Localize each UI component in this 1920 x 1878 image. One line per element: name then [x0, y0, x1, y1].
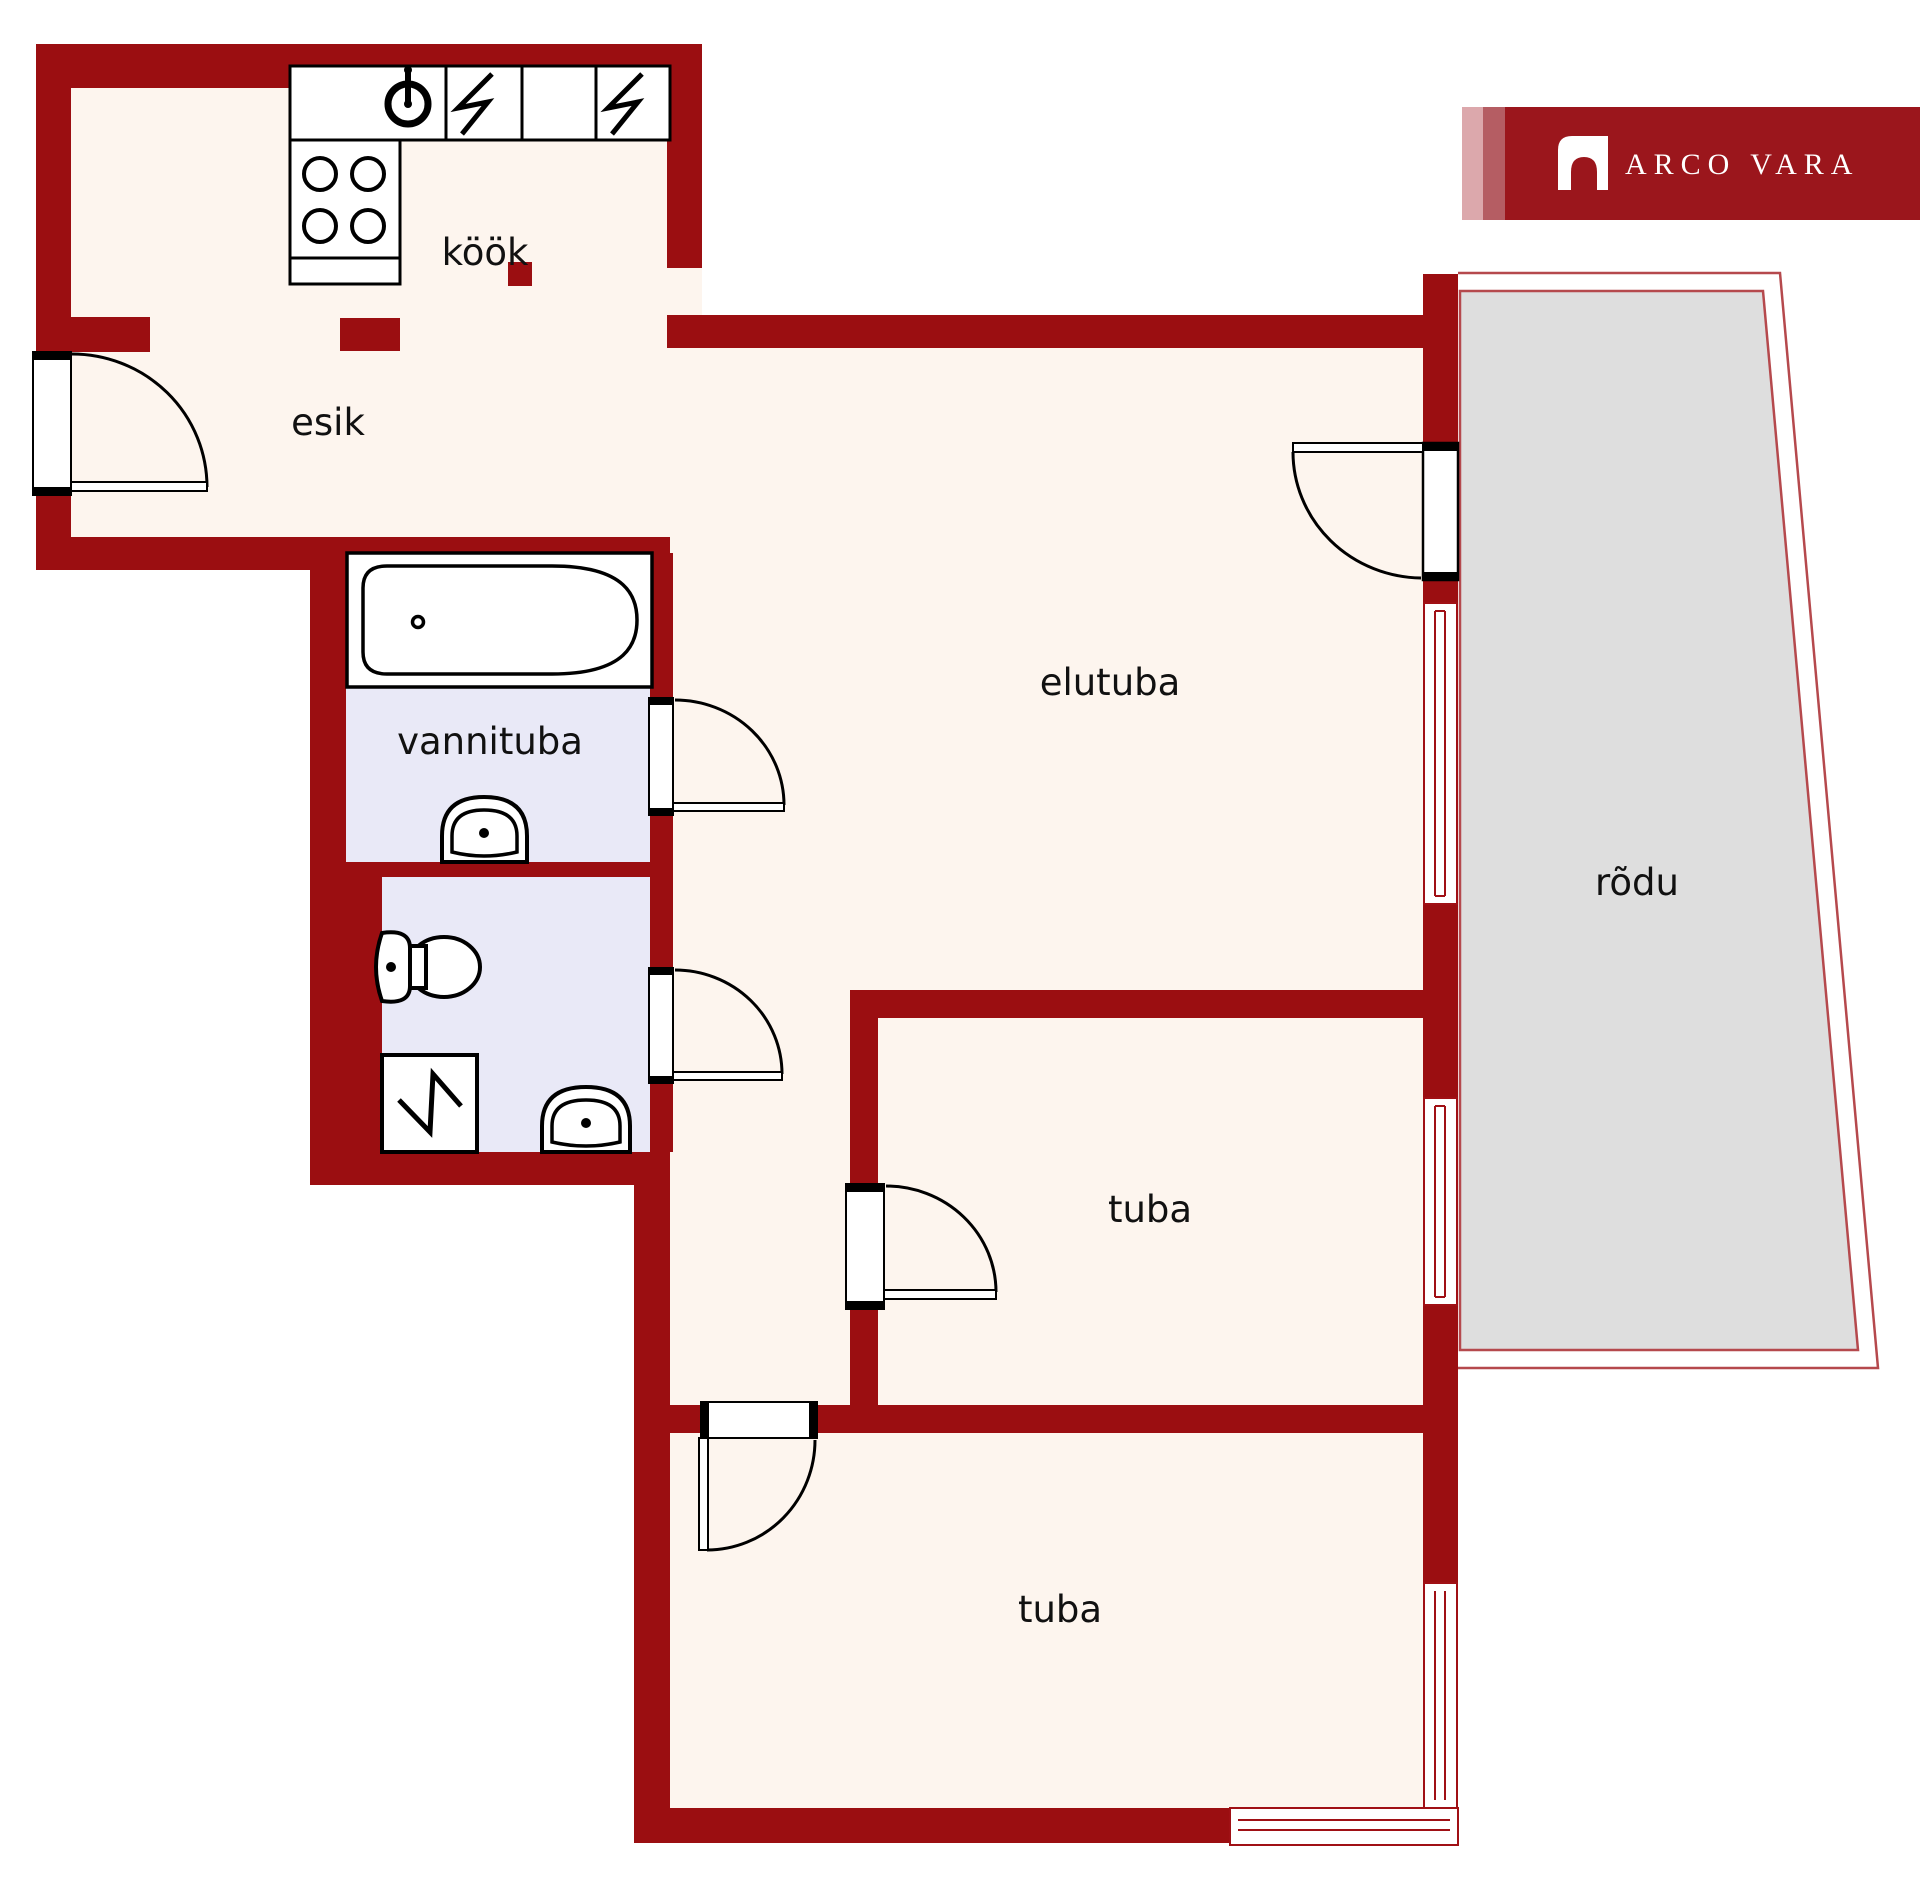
sink-icon [542, 1087, 630, 1152]
sink-icon [442, 797, 527, 862]
wall-bath-divider [346, 862, 652, 877]
door-leaf [71, 482, 207, 491]
arch-icon [1558, 136, 1608, 190]
room-label-tuba-bottom: tuba [1018, 1588, 1102, 1631]
window-1 [1424, 603, 1457, 904]
brand-banner: ARCO VARA [1462, 107, 1920, 220]
bathtub-icon [347, 553, 652, 687]
wall-bath-left-lower [310, 862, 382, 1152]
wall-bottom [634, 1808, 1230, 1843]
wall-divider-left [670, 1405, 701, 1433]
window-3 [1424, 1583, 1457, 1808]
wall-window-top [1423, 274, 1458, 348]
room-label-rodu: rõdu [1595, 861, 1679, 904]
door-leaf [1293, 443, 1423, 452]
stove [290, 140, 400, 284]
door-leaf [699, 1438, 708, 1550]
banner-stripe-medium [1483, 107, 1505, 220]
door-leaf [673, 803, 784, 811]
wall-window-d [1423, 1305, 1458, 1583]
wall-partition-lower [850, 1309, 878, 1405]
wall-kitchen-stub [340, 318, 400, 351]
floor-plan-page: köök esik vannituba elutuba tuba tuba rõ… [0, 0, 1920, 1878]
room-label-esik: esik [291, 401, 365, 444]
wall-left-upper [36, 44, 71, 352]
wall-kitchen-right [667, 44, 702, 268]
wall-left-stub [36, 317, 150, 352]
room-label-elutuba: elutuba [1040, 661, 1181, 704]
washing-machine-icon [382, 1055, 477, 1152]
room-label-kook: köök [442, 231, 529, 274]
wall-divider-right [817, 1405, 1423, 1433]
room-label-tuba-middle: tuba [1108, 1188, 1192, 1231]
window-2 [1424, 1098, 1457, 1305]
brand-logo-text: ARCO VARA [1625, 148, 1859, 181]
wall-tuba-top [850, 990, 1423, 1018]
wall-bath-left-upper [310, 553, 346, 862]
room-label-vannituba: vannituba [397, 720, 583, 763]
wall-elutuba-top [667, 315, 1458, 348]
door-leaf [884, 1290, 996, 1299]
wall-partition-upper [850, 990, 878, 1184]
wall-window-a [1423, 348, 1458, 443]
toilet-icon [376, 932, 480, 1001]
balcony-deck [1460, 291, 1858, 1350]
wall-bath-right-c [650, 1083, 673, 1152]
balcony [1458, 273, 1878, 1368]
window-4-bottom [1230, 1808, 1458, 1845]
wall-corridor-left [634, 1185, 670, 1843]
wall-wc-bottom [310, 1152, 670, 1185]
wall-bath-right-b [650, 815, 673, 968]
wall-window-b [1423, 580, 1458, 603]
door-leaf [673, 1072, 782, 1080]
floor-plan: köök esik vannituba elutuba tuba tuba rõ… [0, 0, 1920, 1878]
banner-stripe-light [1462, 107, 1483, 220]
wall-window-c [1423, 904, 1458, 1098]
